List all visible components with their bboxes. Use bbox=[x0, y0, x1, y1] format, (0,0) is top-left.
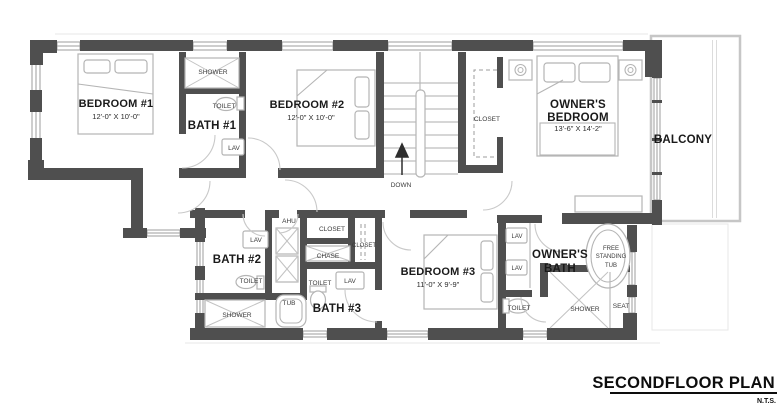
bedroom1-label: BEDROOM #1 bbox=[79, 98, 154, 110]
furniture bbox=[78, 54, 642, 328]
bedroom2-label: BEDROOM #2 bbox=[270, 99, 345, 111]
closet-b-label: CLOSET bbox=[352, 243, 376, 249]
bath2-lav-label: LAV bbox=[250, 237, 262, 244]
bath3-toilet-label: TOILET bbox=[309, 280, 332, 287]
owners-lav1-label: LAV bbox=[512, 234, 523, 240]
bedroom3-dims: 11'-0" X 9'-9" bbox=[417, 280, 460, 289]
bath1-toilet-label: TOILET bbox=[213, 103, 236, 110]
owners-shower-label: SHOWER bbox=[570, 306, 600, 313]
plan-title: SECONDFLOOR PLAN bbox=[592, 374, 775, 392]
bench-icon bbox=[575, 196, 642, 212]
floor-plan-canvas: BEDROOM #1 12'-0" X 10'-0" SHOWER TOILET… bbox=[0, 0, 780, 411]
title-block: SECONDFLOOR PLAN N.T.S. bbox=[592, 374, 777, 405]
bed1-icon bbox=[78, 54, 153, 134]
bath2-label: BATH #2 bbox=[213, 254, 261, 266]
owners-seat-label: SEAT bbox=[613, 303, 630, 310]
balcony-label: BALCONY bbox=[654, 134, 712, 146]
owners-toilet-label: TOILET bbox=[508, 305, 531, 312]
bath1-shower-label: SHOWER bbox=[198, 69, 228, 76]
owners-bedroom-label-1: OWNER'S bbox=[550, 99, 606, 111]
bath3-tub-label: TUB bbox=[283, 300, 296, 307]
bath2-toilet-label: TOILET bbox=[240, 278, 263, 285]
down-arrow-icon bbox=[396, 144, 408, 175]
freestanding-tub-label-3: TUB bbox=[605, 263, 617, 269]
owners-bath-label-1: OWNER'S bbox=[532, 249, 588, 261]
ahu-label: AHU bbox=[282, 218, 296, 225]
staircase bbox=[384, 52, 458, 177]
owners-vanity-icons bbox=[506, 223, 530, 288]
owners-bedroom-label-2: BEDROOM bbox=[547, 112, 608, 124]
bath1-label: BATH #1 bbox=[188, 120, 237, 132]
owners-bath-label-2: BATH bbox=[544, 263, 576, 275]
plan-scale-note: N.T.S. bbox=[757, 398, 776, 405]
owners-lav2-label: LAV bbox=[512, 266, 523, 272]
stair-closet-label: CLOSET bbox=[474, 116, 500, 123]
bath2-shower-label: SHOWER bbox=[222, 312, 252, 319]
floor-plan-page: BEDROOM #1 12'-0" X 10'-0" SHOWER TOILET… bbox=[0, 0, 780, 411]
bedroom3-label: BEDROOM #3 bbox=[401, 266, 476, 278]
bath3-label: BATH #3 bbox=[313, 303, 361, 315]
freestanding-tub-label-1: FREE bbox=[603, 246, 619, 252]
stairs-down-label: DOWN bbox=[391, 182, 412, 189]
balcony-structure bbox=[651, 36, 740, 221]
owners-bedroom-dims: 13'-6" X 14'-2" bbox=[554, 124, 602, 133]
freestanding-tub-label-2: STANDING bbox=[596, 254, 627, 260]
ahu-unit-icon bbox=[276, 228, 298, 282]
chase-label: CHASE bbox=[317, 253, 340, 260]
bath1-lav-label: LAV bbox=[228, 145, 240, 152]
bath3-lav-label: LAV bbox=[344, 278, 356, 285]
bedroom1-dims: 12'-0" X 10'-0" bbox=[92, 112, 140, 121]
closet-a-label: CLOSET bbox=[319, 226, 345, 233]
bedroom2-dims: 12'-0" X 10'-0" bbox=[287, 113, 335, 122]
